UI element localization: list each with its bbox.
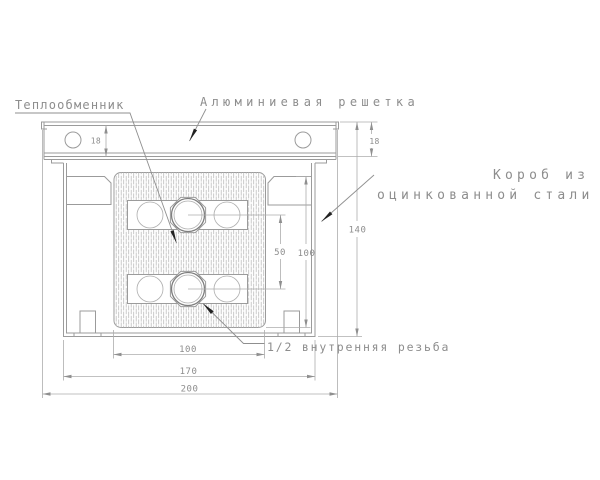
dim-text-18-left: 18: [91, 137, 101, 146]
label-steel-box-line2: оцинкованной стали: [377, 188, 593, 203]
grille-right-hole: [295, 132, 311, 148]
dim-grille-height-right: 18: [369, 122, 379, 157]
label-heat-exchanger: Теплообменник: [15, 98, 125, 112]
label-aluminum-grille: Алюминиевая решетка: [200, 95, 419, 109]
right-foot-base: [278, 333, 305, 337]
right-foot: [284, 311, 300, 333]
dim-box-width: 170: [64, 367, 316, 378]
box-right-channel: [268, 177, 312, 206]
label-steel-box-line1: Короб из: [493, 168, 589, 183]
box-left-channel: [67, 177, 112, 205]
grille-left-hole: [65, 132, 81, 148]
dim-core-width: 100: [114, 345, 265, 356]
left-foot: [80, 311, 96, 333]
dim-text-200: 200: [181, 385, 199, 395]
left-foot-base: [74, 333, 101, 337]
leader-arrow-steel-box: [322, 212, 333, 222]
convector-section-drawing: 18 18 140 50: [0, 0, 600, 480]
dim-text-18-right: 18: [369, 137, 379, 146]
dim-grille-height-left: 18: [91, 126, 108, 157]
leader-arrow-aluminum-grille: [190, 129, 198, 141]
callouts: Теплообменник Алюминиевая решетка Короб …: [15, 95, 593, 354]
box-right-lip: [315, 160, 327, 163]
dim-overall-width: 200: [43, 385, 338, 396]
dim-text-100-bottom: 100: [179, 345, 197, 355]
dim-text-140: 140: [349, 226, 367, 236]
box-left-lip: [52, 160, 64, 163]
dim-text-50: 50: [274, 248, 286, 258]
dim-tube-spacing: 50: [274, 215, 286, 289]
label-thread: 1/2 внутренняя резьба: [267, 340, 450, 354]
dim-text-170: 170: [180, 367, 198, 377]
dim-text-100-right: 100: [298, 249, 316, 259]
dim-core-height: 100: [298, 177, 316, 328]
technical-drawing-canvas: 18 18 140 50: [0, 0, 600, 480]
dim-box-height: 140: [349, 122, 367, 337]
